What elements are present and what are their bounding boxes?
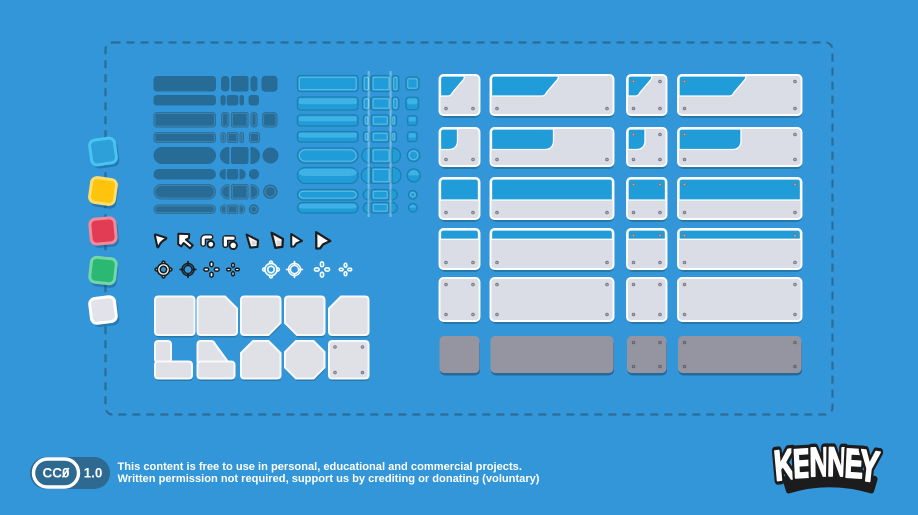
- svg-text:1.0: 1.0: [84, 466, 103, 481]
- svg-text:This content is free to use in: This content is free to use in personal,…: [118, 461, 522, 473]
- svg-text:Written permission not require: Written permission not required, support…: [118, 473, 540, 485]
